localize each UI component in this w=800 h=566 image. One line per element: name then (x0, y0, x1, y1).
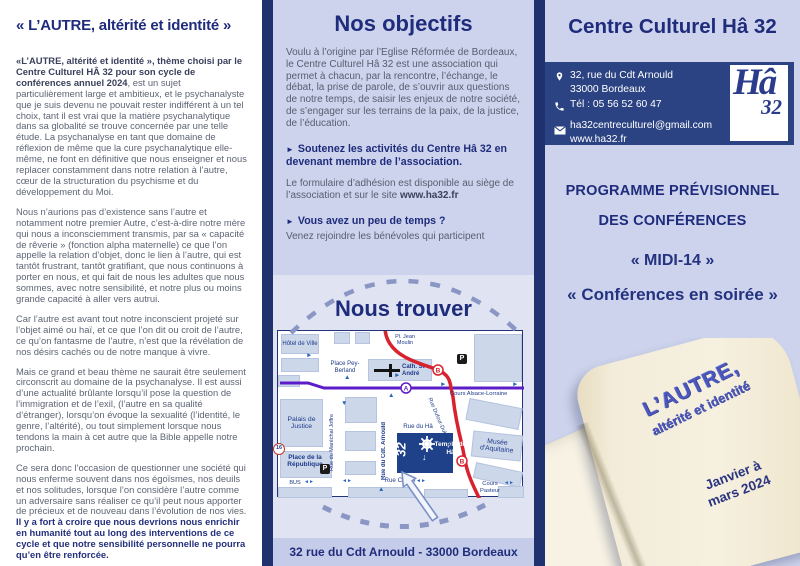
ha32-logo: Hâ 32 (730, 65, 788, 141)
temple-number: 32 (394, 442, 409, 456)
map-building-hotel-de-ville: Hôtel de Ville (281, 334, 319, 354)
contact-address-line2: 33000 Bordeaux (570, 83, 673, 97)
map-building (424, 489, 468, 498)
street-arrow-icon: ◄► (304, 479, 314, 486)
volunteer-heading: ►Vous avez un peu de temps ? (286, 215, 521, 228)
objectives-title: Nos objectifs (286, 0, 521, 37)
station-a-badge (401, 383, 411, 393)
editorial-paragraph-3: Car l’autre est avant tout notre inconsc… (16, 314, 249, 358)
street-arrow-icon: ► (394, 373, 400, 380)
divider-right (534, 0, 545, 566)
program-heading: PROGRAMME PRÉVISIONNEL DES CONFÉRENCES (545, 176, 800, 236)
map-label-pasteur: Cours Pasteur (474, 481, 506, 494)
envelope-icon (554, 119, 570, 140)
column-editorial: « L’AUTRE, altérité et identité » «L’AUT… (0, 0, 262, 566)
contact-website: www.ha32.fr (570, 133, 712, 147)
map-building (474, 334, 522, 382)
open-book-photo: L’AUTRE, altérité et identité Janvier à … (545, 338, 800, 566)
map-label-pey-berland: Place Pey-Berland (323, 361, 367, 375)
bus-route-16-badge: 16 (273, 443, 285, 455)
contact-address: 32, rue du Cdt Arnould 33000 Bordeaux (570, 69, 673, 96)
station-b-badge (433, 365, 443, 375)
evening-conferences-label: « Conférences en soirée » (545, 285, 800, 305)
street-arrow-icon: ► (512, 382, 518, 389)
contact-phone: Tél : 05 56 52 60 47 (570, 98, 662, 112)
volunteer-heading-text: Vous avez un peu de temps ? (298, 215, 446, 227)
map-building (281, 358, 319, 372)
editorial-p5-bold: Il y a fort à croire que nous devrions n… (16, 516, 245, 560)
map-building-palais-justice: Palais de Justice (280, 399, 323, 447)
street-arrow-icon: ◄► (342, 478, 352, 485)
editorial-paragraph-2: Nous n’aurions pas d’existence sans l’au… (16, 207, 249, 305)
map-label-musee: Musée d'Aquitaine (472, 437, 521, 456)
map-building (345, 431, 376, 451)
find-us-title: Nous trouver (273, 296, 534, 322)
contact-email: ha32centreculturel@gmail.com (570, 119, 712, 133)
map-building (345, 397, 377, 423)
map-building (278, 487, 332, 498)
street-arrow-icon: ▲ (388, 393, 394, 400)
cover-title: Centre Culturel Hâ 32 (545, 0, 800, 39)
map-building-musee: Musée d'Aquitaine (471, 430, 523, 461)
bullet-arrow-icon: ► (286, 145, 294, 154)
program-heading-line2: DES CONFÉRENCES (545, 206, 800, 236)
contact-card: 32, rue du Cdt Arnould 33000 Bordeaux Té… (545, 62, 794, 145)
find-us-section: Nous trouver Hôtel de Ville Cath. St And… (273, 275, 534, 538)
column-objectives-map: Nos objectifs Voulu à l’origine par l’Eg… (273, 0, 534, 566)
parking-icon: P (320, 464, 330, 474)
objectives-section: Nos objectifs Voulu à l’origine par l’Eg… (273, 0, 534, 275)
street-arrow-icon: ► (440, 382, 446, 389)
map-building (355, 332, 370, 344)
website-text: www.ha32.fr (400, 190, 459, 201)
midi14-label: « MIDI-14 » (545, 252, 800, 270)
editorial-p1-text: , est un sujet particulièrement large et… (16, 77, 247, 197)
volunteer-text: Venez rejoindre les bénévoles qui partic… (286, 231, 521, 243)
map-label-joffre: Rue du Maréchal Joffre (329, 403, 339, 481)
map-building (345, 461, 376, 475)
editorial-p5-text: Ce sera donc l’occasion de questionner u… (16, 462, 246, 517)
contact-email-site: ha32centreculturel@gmail.com www.ha32.fr (570, 119, 712, 146)
support-heading-text: Soutenez les activités du Centre Hâ 32 e… (286, 143, 507, 168)
support-heading: ►Soutenez les activités du Centre Hâ 32 … (286, 143, 521, 169)
station-a-letter: A (404, 386, 409, 393)
objectives-text: Voulu à l’origine par l’Eglise Réformée … (286, 47, 521, 130)
city-map: Hôtel de Ville Cath. St André Palais de … (277, 330, 523, 497)
divider-left (262, 0, 273, 566)
map-label-bus: BUS (286, 480, 304, 487)
street-arrow-icon: ▼ (341, 401, 347, 408)
map-label-cathedral: Cath. St André (402, 364, 432, 378)
street-arrow-icon: ▲ (378, 487, 384, 494)
program-heading-line1: PROGRAMME PRÉVISIONNEL (545, 176, 800, 206)
support-text: Le formulaire d’adhésion est disponible … (286, 178, 521, 202)
address-band-text: 32 rue du Cdt Arnould - 33000 Bordeaux (289, 545, 517, 559)
street-arrow-icon: ◄► (416, 478, 426, 485)
tram-line-a (280, 383, 524, 388)
street-arrow-icon: ► (306, 353, 312, 360)
temple-down-arrow-icon: ↓ (422, 452, 427, 462)
map-label-alsace-lorraine: Cours Alsace-Lorraine (450, 391, 522, 398)
editorial-paragraph-5: Ce sera donc l’occasion de questionner u… (16, 463, 249, 561)
contact-address-line1: 32, rue du Cdt Arnould (570, 69, 673, 83)
phone-icon (554, 98, 570, 117)
editorial-paragraph-1: «L’AUTRE, altérité et identité », thème … (16, 56, 249, 198)
map-label-rue-du-ha: Rue du Hâ (396, 423, 440, 430)
map-building (334, 332, 350, 344)
column-cover: Centre Culturel Hâ 32 32, rue du Cdt Arn… (545, 0, 800, 566)
map-label-palais-justice: Palais de Justice (281, 416, 322, 430)
map-building (278, 375, 300, 387)
map-label-hotel-de-ville: Hôtel de Ville (282, 341, 317, 348)
location-pin-icon (554, 69, 570, 89)
address-band: 32 rue du Cdt Arnould - 33000 Bordeaux (273, 538, 534, 566)
dashed-arc-bottom (323, 505, 485, 527)
editorial-paragraph-4: Mais ce grand et beau thème ne saurait ê… (16, 367, 249, 454)
station-b-letter: B (436, 368, 441, 375)
street-arrow-icon: ▲ (344, 375, 350, 382)
parking-icon: P (457, 354, 467, 364)
editorial-title: « L’AUTRE, altérité et identité » (16, 17, 249, 34)
map-label-jean-moulin: Pl. Jean Moulin (388, 334, 422, 346)
street-arrow-icon: ◄► (504, 480, 514, 487)
map-building (465, 398, 522, 430)
bullet-arrow-icon: ► (286, 217, 294, 226)
brochure-page: « L’AUTRE, altérité et identité » «L’AUT… (0, 0, 800, 566)
